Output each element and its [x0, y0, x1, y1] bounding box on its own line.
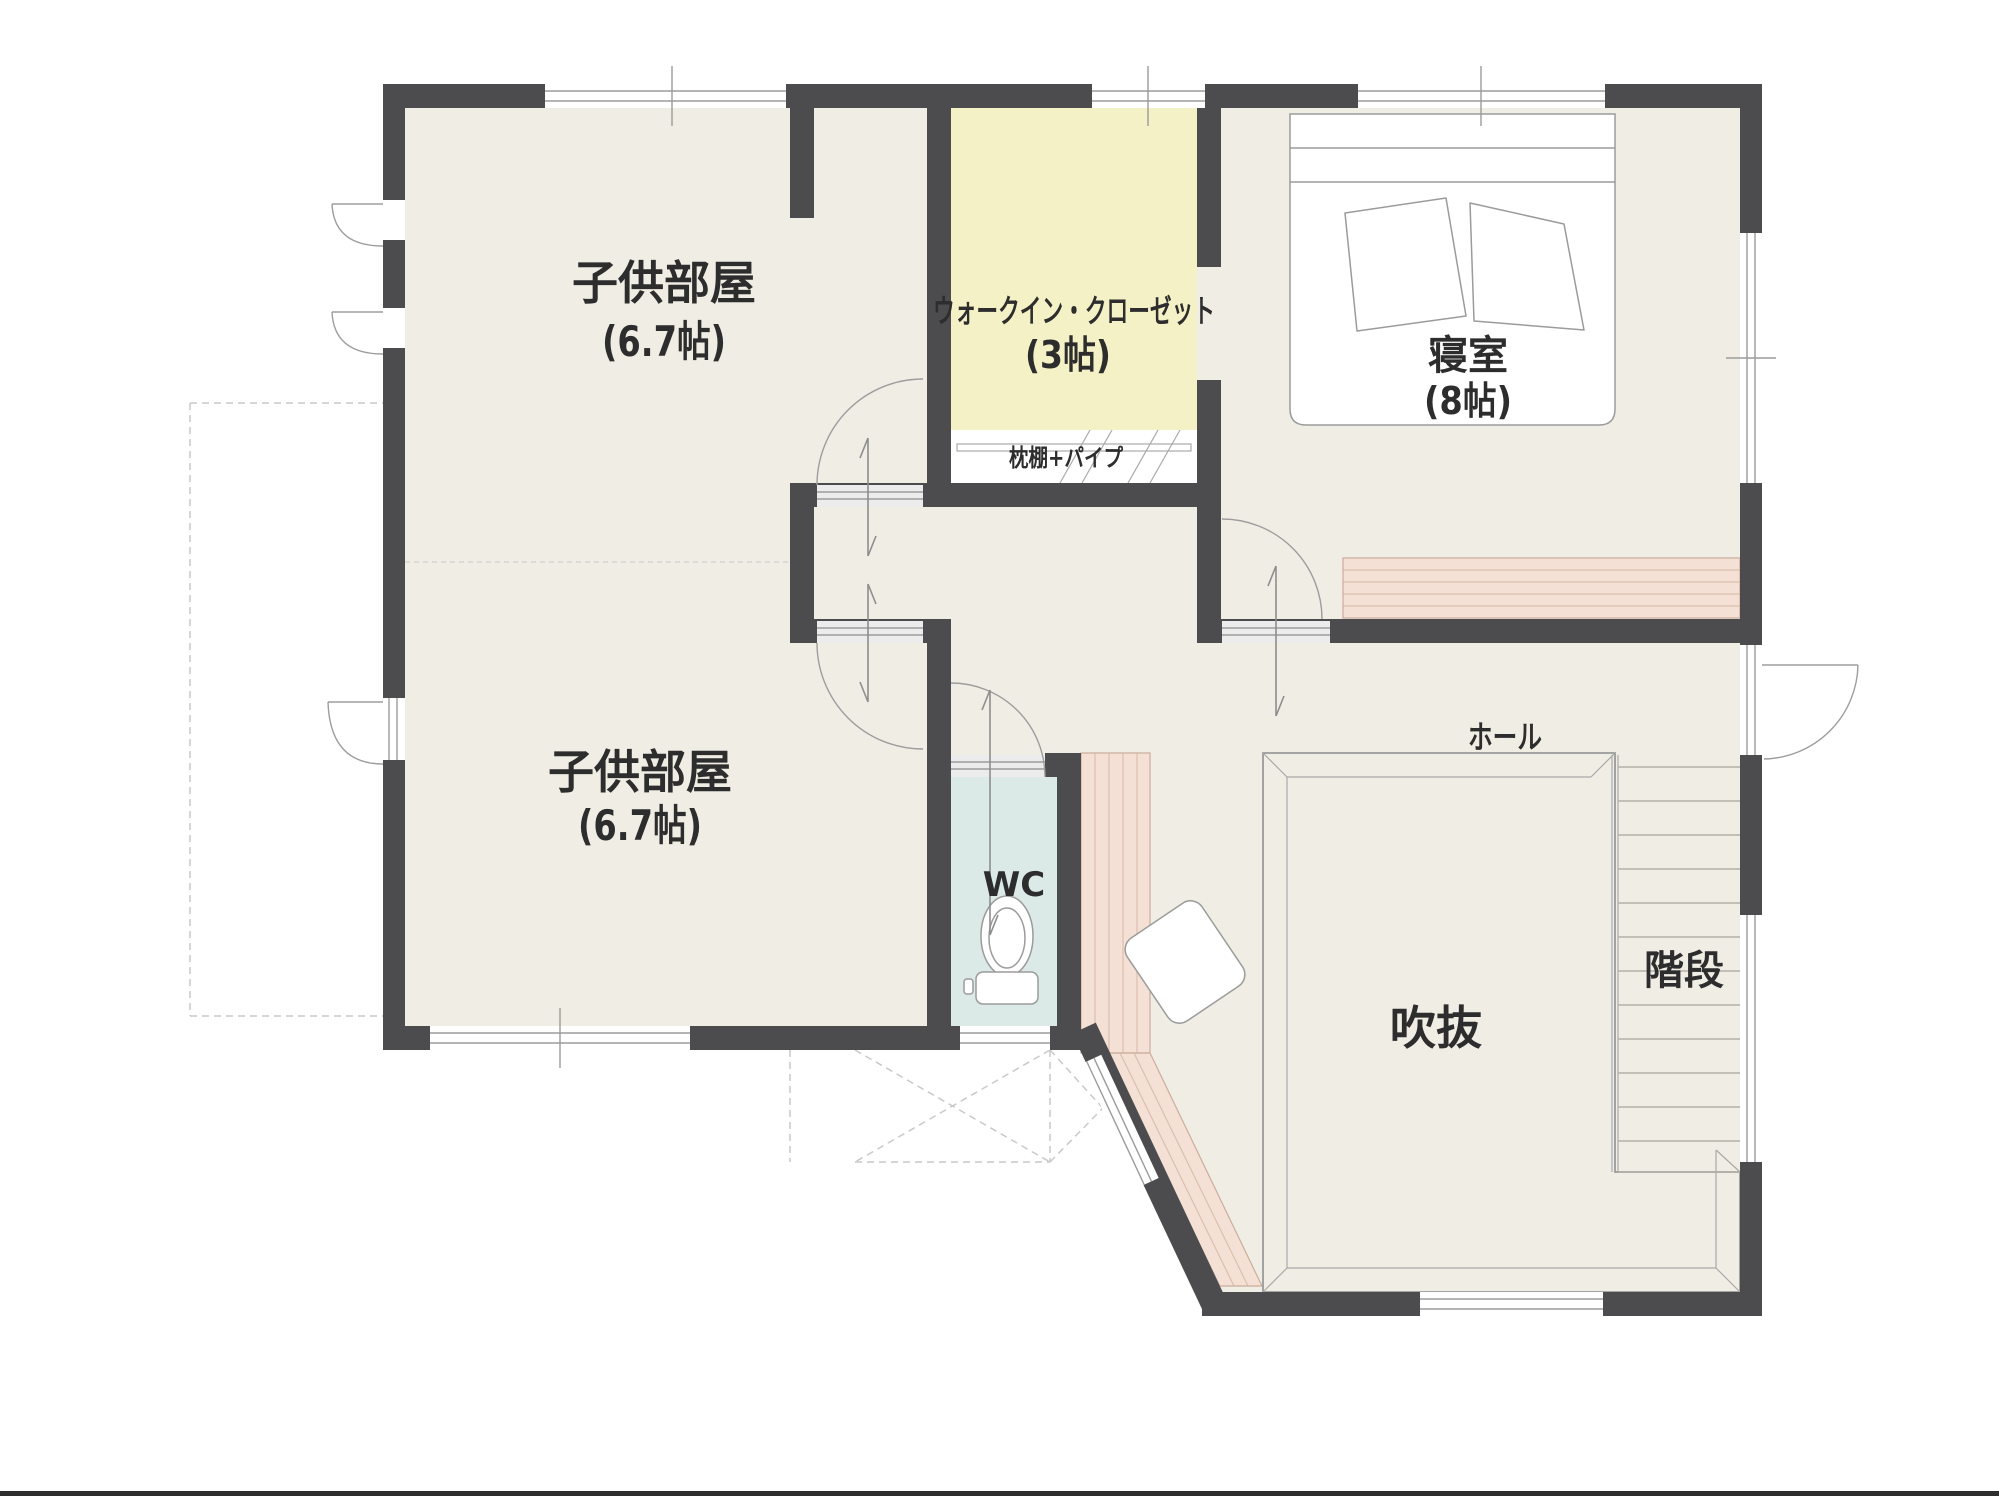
label-wic-size: (3帖): [1025, 333, 1111, 377]
wall-wc-top-filler: [1045, 753, 1057, 777]
label-kids-room-2-name: 子供部屋: [548, 745, 732, 799]
label-void: 吹抜: [1390, 1001, 1482, 1055]
label-stairs: 階段: [1644, 948, 1724, 994]
wall-vestibule-right: [927, 619, 951, 759]
label-bedroom-name: 寝室: [1428, 333, 1508, 379]
label-hall: ホール: [1468, 718, 1542, 756]
label-kids-room-1-size: (6.7帖): [602, 317, 726, 366]
label-wic-name: ウォークイン・クローゼット: [933, 292, 1215, 330]
casement-left-1: [332, 200, 405, 246]
wall-wc-left: [927, 753, 951, 1026]
wall-wc-right: [1057, 753, 1081, 1026]
label-kids-room-2-size: (6.7帖): [578, 801, 702, 850]
casement-left-2: [332, 308, 405, 354]
floor-plan-page: 子供部屋 (6.7帖) 子供部屋 (6.7帖) ウォークイン・クローゼット (3…: [0, 0, 1999, 1500]
window-bottom-void: [1420, 1292, 1603, 1316]
label-wic-shelf: 枕棚+パイプ: [1009, 444, 1124, 472]
door-hall-right: [1740, 645, 1858, 759]
window-wc: [960, 1026, 1050, 1050]
window-right-stairs: [1740, 915, 1762, 1162]
page-bottom-line: [0, 1491, 1999, 1496]
floor-plan-drawing: 子供部屋 (6.7帖) 子供部屋 (6.7帖) ウォークイン・クローゼット (3…: [0, 0, 1999, 1500]
label-bedroom-size: (8帖): [1424, 379, 1512, 423]
hall-counter-vertical: [1081, 753, 1150, 1053]
bedroom-counter: [1343, 558, 1740, 618]
casement-left-3: [328, 698, 405, 764]
label-wc: WC: [983, 865, 1045, 905]
wall-nook-stub: [790, 108, 814, 218]
pillow-left: [1345, 198, 1466, 331]
label-kids-room-1-name: 子供部屋: [572, 256, 756, 310]
